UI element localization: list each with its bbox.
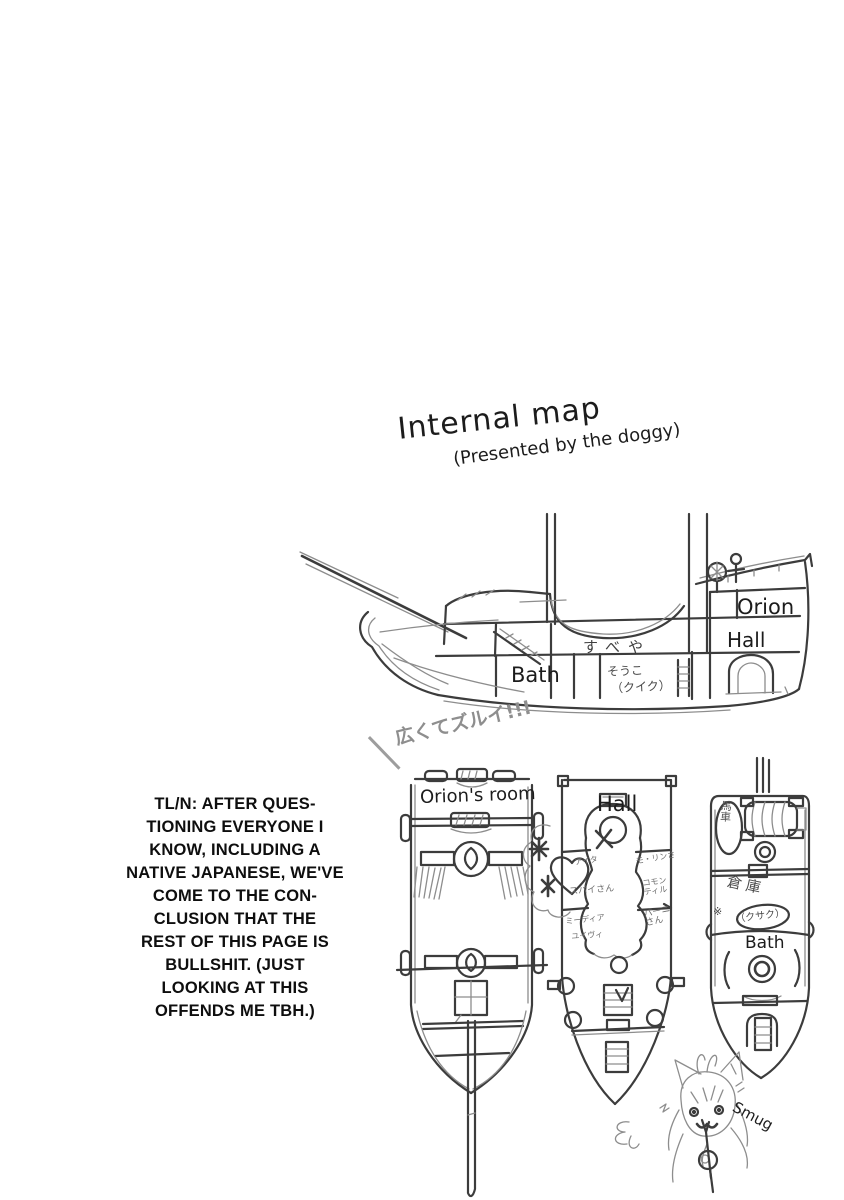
side-room-label-storage-note-jp: （クイク） [611,676,672,696]
tln-line: CLUSION THAT THE [101,908,369,931]
plan-scribble: コモン ティル [642,876,668,897]
side-room-label-cabin-jp: すべや [583,636,651,657]
tln-line: KNOW, INCLUDING A [101,839,369,862]
tln-line: LOOKING AT THIS [101,977,369,1000]
plan-label-orions-room: Orion's room [420,783,536,808]
plan-label-cart-jp: 馬車 [716,799,733,822]
side-room-label-storage-jp: そうこ [607,661,644,679]
tln-line: COME TO THE CON- [101,885,369,908]
tln-line: TIONING EVERYONE I [101,816,369,839]
tln-line: NATIVE JAPANESE, WE'VE [101,862,369,885]
manga-page: Internal map (Presented by the doggy) [0,0,844,1200]
tln-line: TL/N: AFTER QUES- [101,793,369,816]
tln-line: REST OF THIS PAGE IS [101,931,369,954]
plan-label-bath: Bath [745,933,785,953]
side-room-label-orion: Orion [737,595,794,619]
side-room-label-bath: Bath [511,663,560,687]
tln-line: OFFENDS ME TBH.) [101,1000,369,1023]
plan-label-refmark: ※ [713,905,722,918]
tln-line: BULLSHIT. (JUST [101,954,369,977]
side-room-label-hall: Hall [727,628,765,652]
plan-label-hall: Hall [597,792,637,816]
translator-note: TL/N: AFTER QUES- TIONING EVERYONE I KNO… [101,793,369,1023]
